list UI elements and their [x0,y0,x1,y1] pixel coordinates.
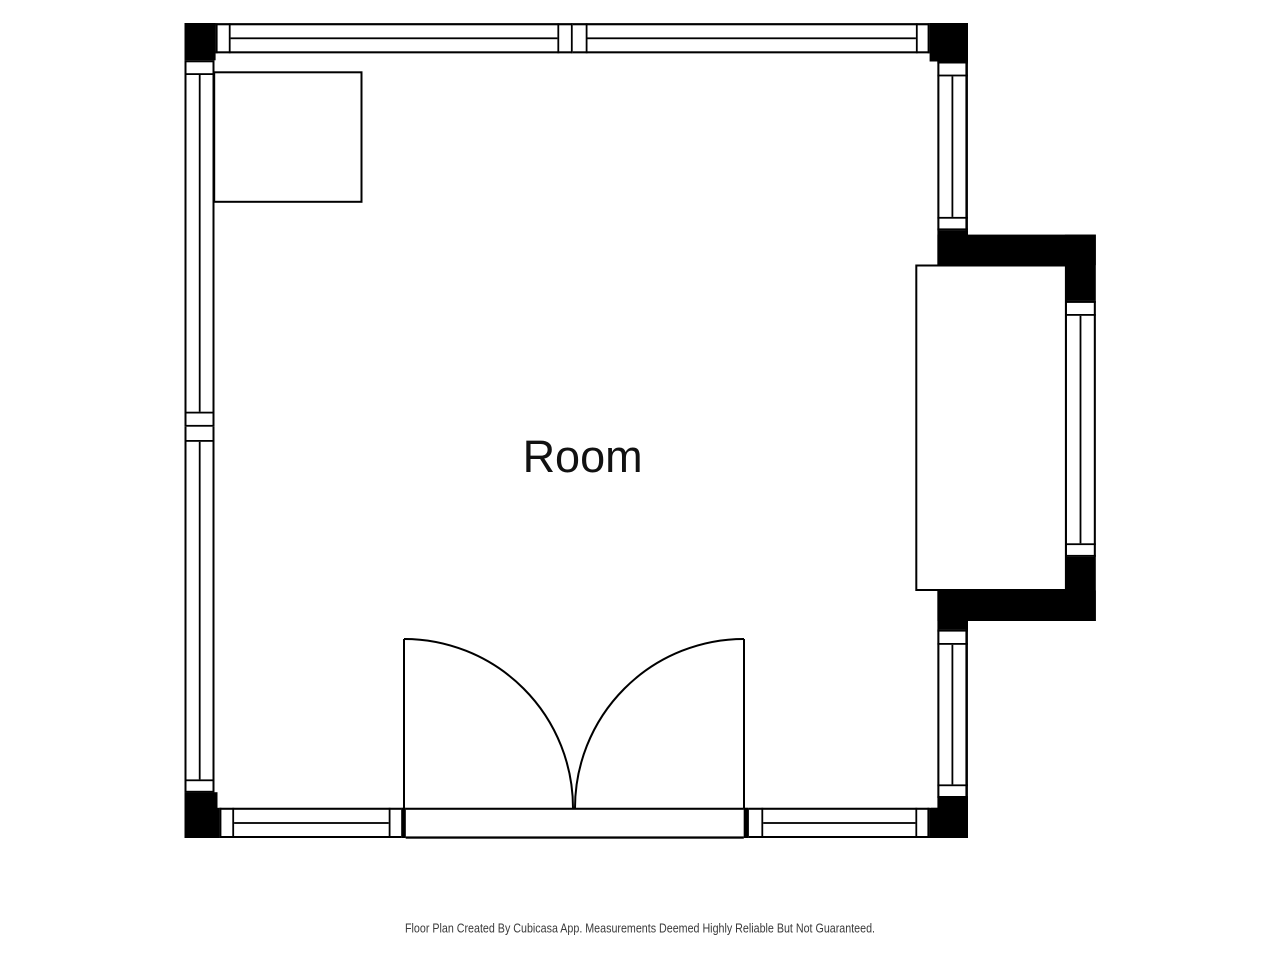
svg-text:Room: Room [523,431,643,482]
svg-text:Floor Plan Created By Cubicasa: Floor Plan Created By Cubicasa App. Meas… [405,920,875,935]
